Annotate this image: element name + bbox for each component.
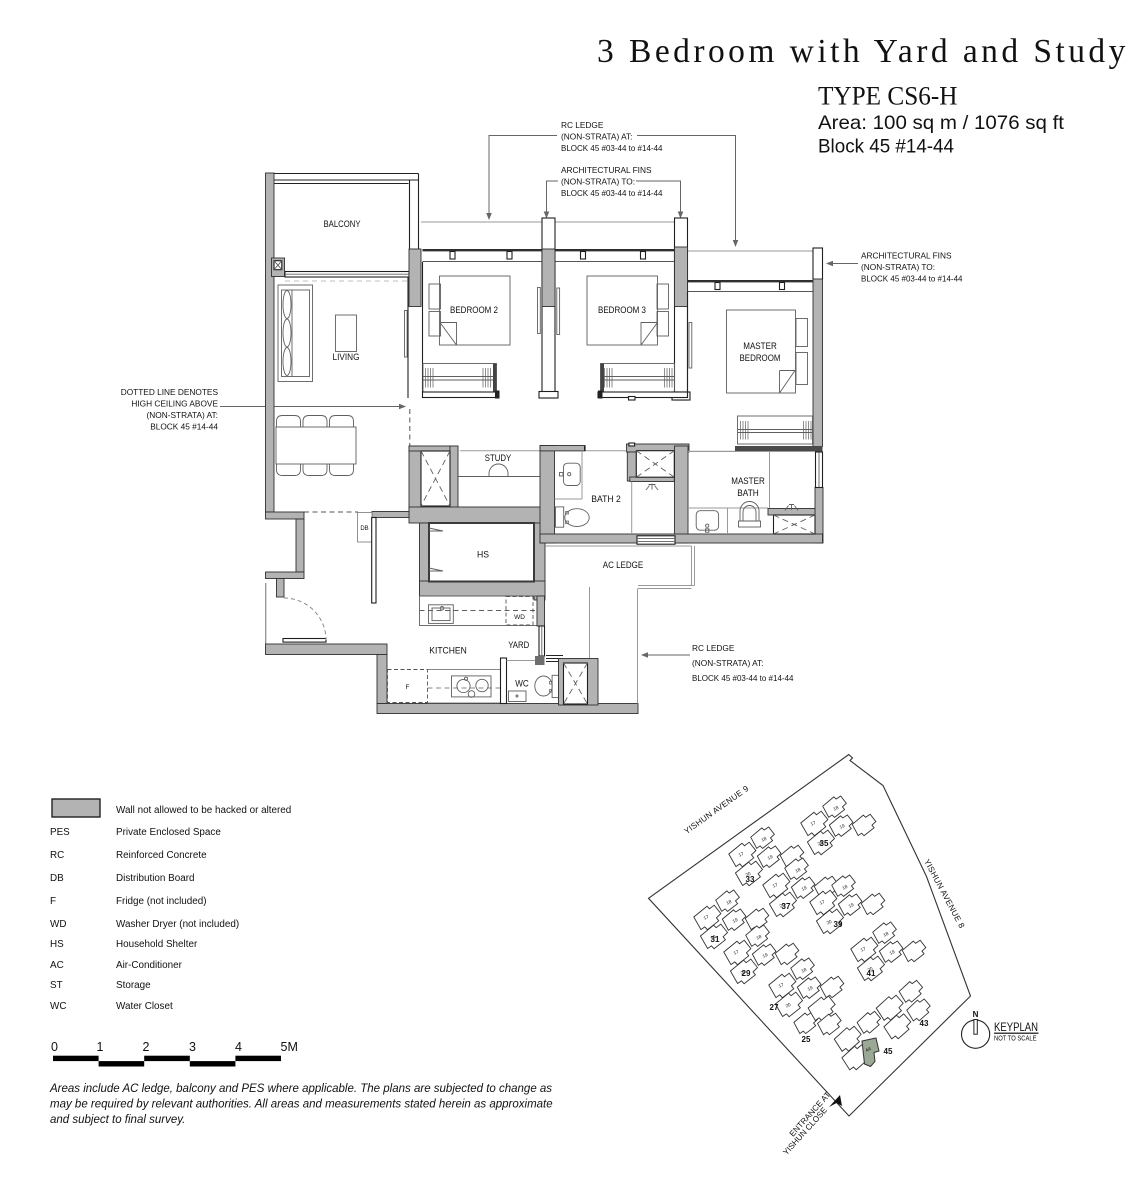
svg-text:Household Shelter: Household Shelter — [116, 939, 198, 950]
svg-text:BLOCK 45 #03-44 to #14-44: BLOCK 45 #03-44 to #14-44 — [692, 673, 794, 683]
svg-text:ST: ST — [50, 980, 63, 991]
svg-text:RC LEDGE: RC LEDGE — [561, 120, 604, 130]
svg-text:(NON-STRATA) TO:: (NON-STRATA) TO: — [861, 262, 935, 272]
svg-text:PES: PES — [50, 827, 70, 838]
svg-text:LIVING: LIVING — [333, 352, 360, 363]
svg-text:39: 39 — [834, 920, 843, 929]
svg-text:YARD: YARD — [508, 640, 529, 651]
svg-text:WD: WD — [514, 614, 525, 621]
svg-text:Private Enclosed Space: Private Enclosed Space — [116, 827, 221, 838]
svg-text:Area: 100 sq m / 1076 sq ft: Area: 100 sq m / 1076 sq ft — [818, 112, 1065, 134]
svg-text:Wall not allowed to be hacked: Wall not allowed to be hacked or altered — [116, 805, 291, 816]
svg-text:NOT TO SCALE: NOT TO SCALE — [994, 1034, 1037, 1043]
svg-text:(NON-STRATA) AT:: (NON-STRATA) AT: — [147, 410, 218, 420]
svg-text:BLOCK 45 #03-44 to #14-44: BLOCK 45 #03-44 to #14-44 — [861, 274, 963, 284]
svg-text:35: 35 — [820, 839, 829, 848]
svg-text:AC LEDGE: AC LEDGE — [603, 560, 644, 571]
svg-text:4: 4 — [235, 1040, 242, 1054]
svg-text:AC: AC — [50, 960, 64, 971]
svg-text:RC: RC — [50, 850, 64, 861]
svg-text:25: 25 — [802, 1035, 811, 1044]
svg-text:41: 41 — [867, 969, 876, 978]
svg-text:BEDROOM 3: BEDROOM 3 — [598, 305, 646, 316]
svg-text:N: N — [973, 1010, 979, 1019]
svg-text:BATH 2: BATH 2 — [591, 494, 621, 505]
svg-text:BLOCK 45 #14-44: BLOCK 45 #14-44 — [150, 422, 218, 432]
svg-text:Areas include AC ledge, balcon: Areas include AC ledge, balcony and PES … — [49, 1083, 552, 1095]
svg-text:DOTTED LINE DENOTES: DOTTED LINE DENOTES — [121, 387, 219, 397]
svg-text:BLOCK 45 #03-44 to #14-44: BLOCK 45 #03-44 to #14-44 — [561, 143, 663, 153]
svg-text:F: F — [406, 684, 410, 691]
svg-text:(NON-STRATA) AT:: (NON-STRATA) AT: — [561, 132, 632, 142]
svg-text:MASTER: MASTER — [731, 476, 765, 487]
svg-text:Fridge (not included): Fridge (not included) — [116, 896, 207, 907]
svg-text:WC: WC — [515, 679, 529, 690]
svg-text:TYPE CS6-H: TYPE CS6-H — [818, 82, 958, 111]
svg-text:43: 43 — [920, 1019, 929, 1028]
svg-text:27: 27 — [770, 1003, 779, 1012]
svg-text:ARCHITECTURAL FINS: ARCHITECTURAL FINS — [861, 251, 952, 261]
svg-text:(NON-STRATA) TO:: (NON-STRATA) TO: — [561, 177, 635, 187]
svg-text:3: 3 — [189, 1040, 196, 1054]
svg-text:37: 37 — [782, 902, 791, 911]
svg-text:Washer Dryer (not included): Washer Dryer (not included) — [116, 919, 239, 930]
svg-text:WD: WD — [50, 919, 66, 930]
svg-text:WC: WC — [50, 1001, 66, 1012]
svg-text:Air-Conditioner: Air-Conditioner — [116, 960, 183, 971]
svg-text:BLOCK 45 #03-44 to #14-44: BLOCK 45 #03-44 to #14-44 — [561, 188, 663, 198]
svg-text:0: 0 — [51, 1040, 58, 1054]
svg-text:MASTER: MASTER — [743, 341, 777, 352]
svg-text:BALCONY: BALCONY — [324, 219, 361, 230]
svg-text:Water Closet: Water Closet — [116, 1001, 173, 1012]
svg-text:HIGH CEILING ABOVE: HIGH CEILING ABOVE — [131, 399, 218, 409]
svg-text:29: 29 — [742, 969, 751, 978]
svg-text:3 Bedroom with Yard and Study: 3 Bedroom with Yard and Study — [597, 33, 1129, 70]
svg-text:DB: DB — [360, 526, 368, 532]
svg-text:5M: 5M — [281, 1040, 298, 1054]
svg-text:HS: HS — [477, 550, 489, 561]
svg-text:HS: HS — [50, 939, 64, 950]
svg-text:and subject to final survey.: and subject to final survey. — [50, 1114, 185, 1126]
svg-text:Block 45 #14-44: Block 45 #14-44 — [818, 136, 954, 158]
svg-text:Distribution Board: Distribution Board — [116, 873, 195, 884]
svg-text:BEDROOM 2: BEDROOM 2 — [450, 305, 498, 316]
svg-text:1: 1 — [97, 1040, 104, 1054]
svg-text:RC LEDGE: RC LEDGE — [692, 643, 735, 653]
svg-text:BATH: BATH — [737, 488, 759, 499]
svg-text:KEYPLAN: KEYPLAN — [994, 1022, 1038, 1034]
svg-text:may be required by relevant au: may be required by relevant authorities.… — [50, 1099, 553, 1111]
svg-text:DB: DB — [50, 873, 64, 884]
svg-text:33: 33 — [746, 875, 755, 884]
svg-text:STUDY: STUDY — [485, 453, 512, 464]
svg-text:BEDROOM: BEDROOM — [740, 353, 781, 364]
svg-text:2: 2 — [143, 1040, 150, 1054]
svg-text:KITCHEN: KITCHEN — [429, 646, 467, 657]
svg-text:(NON-STRATA) AT:: (NON-STRATA) AT: — [692, 658, 763, 668]
svg-text:F: F — [50, 896, 56, 907]
svg-text:Storage: Storage — [116, 980, 151, 991]
svg-text:31: 31 — [711, 935, 720, 944]
svg-text:ARCHITECTURAL FINS: ARCHITECTURAL FINS — [561, 165, 652, 175]
svg-text:45: 45 — [884, 1047, 893, 1056]
svg-text:Reinforced Concrete: Reinforced Concrete — [116, 850, 207, 861]
